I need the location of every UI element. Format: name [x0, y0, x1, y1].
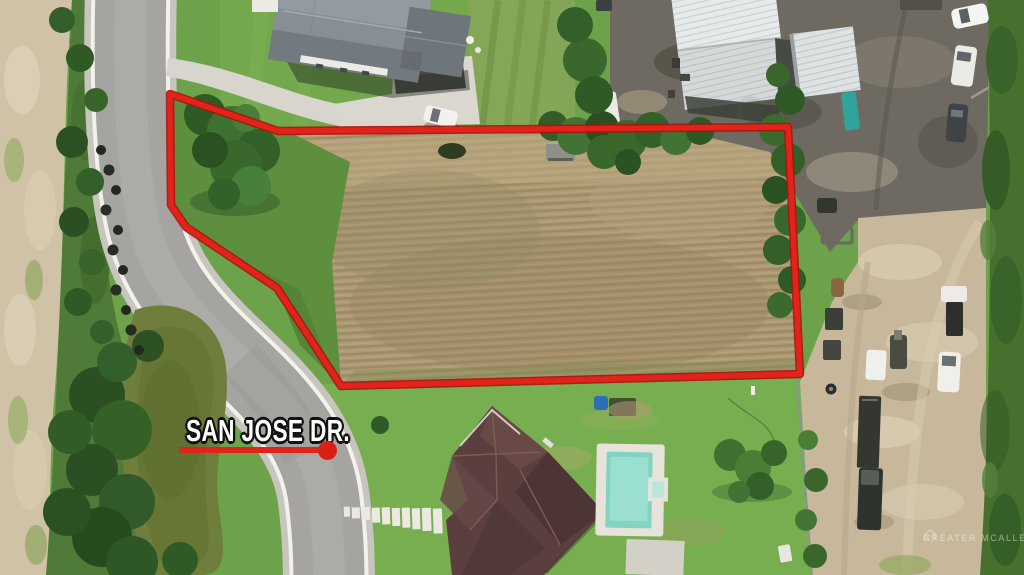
watermark-text: GREATER MCALLEN: [923, 533, 1024, 543]
patio: [625, 539, 684, 575]
street-label-underline: [179, 447, 325, 453]
dark-car-top: [596, 0, 612, 11]
watermark: GREATER MCALLEN: [923, 528, 1024, 546]
dark-truck: [857, 468, 883, 531]
street-label: SAN JOSE DR.: [186, 413, 411, 449]
dark-suv: [945, 103, 968, 143]
aerial-photo: SAN JOSE DR. GREATER MCALLEN: [0, 0, 1024, 575]
aerial-photo-art: [0, 0, 1024, 575]
white-shed: [252, 0, 278, 12]
street-label-marker-dot: [318, 441, 337, 460]
watermark-logo-icon: [923, 528, 937, 541]
warehouse-roof-b: [791, 26, 860, 97]
loader-tractor: [890, 330, 907, 369]
